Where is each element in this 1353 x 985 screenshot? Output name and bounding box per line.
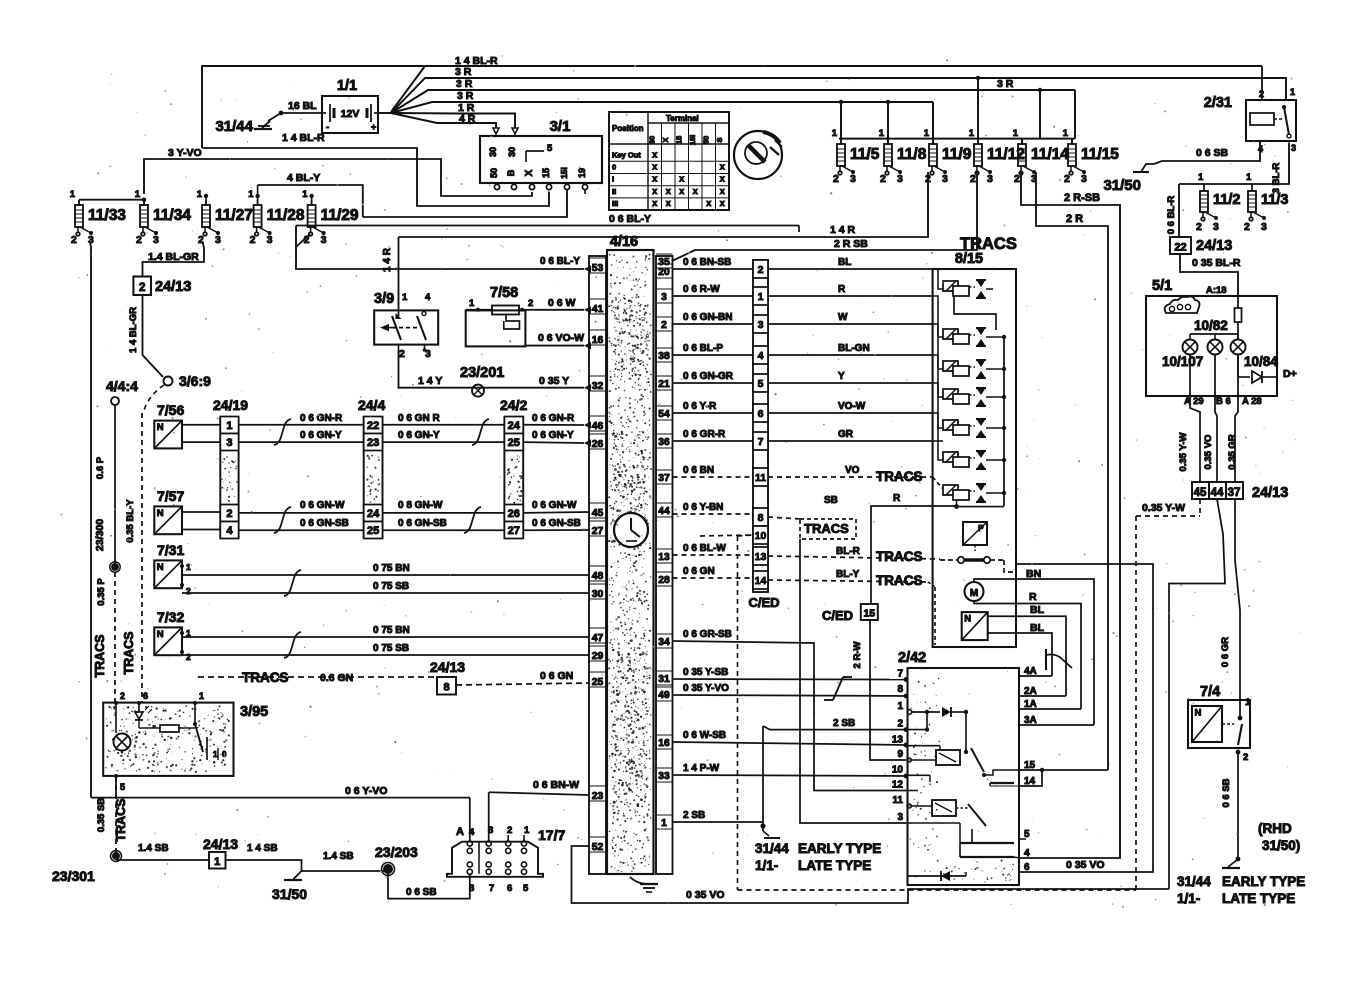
svg-text:N: N (157, 562, 164, 573)
svg-text:2: 2 (1243, 752, 1248, 763)
svg-text:1: 1 (879, 128, 885, 139)
svg-text:0 75 SB: 0 75 SB (373, 643, 409, 654)
svg-text:0: 0 (222, 750, 227, 759)
svg-text:x: x (720, 162, 725, 172)
svg-text:24/2: 24/2 (500, 397, 527, 413)
svg-text:15I: 15I (688, 135, 697, 145)
svg-text:0 6 R-W: 0 6 R-W (683, 284, 720, 295)
svg-text:2: 2 (661, 320, 667, 331)
svg-text:1: 1 (197, 189, 203, 200)
svg-text:2: 2 (250, 234, 256, 246)
svg-text:III: III (612, 199, 618, 208)
svg-text:0 8 GN-W: 0 8 GN-W (398, 500, 443, 511)
svg-text:0 35 BL-R: 0 35 BL-R (1192, 257, 1241, 269)
svg-text:23/301: 23/301 (52, 868, 95, 884)
svg-text:VO: VO (845, 465, 860, 476)
svg-text:2: 2 (186, 652, 191, 662)
svg-text:1: 1 (1063, 128, 1069, 139)
svg-text:0 6 GN-Y: 0 6 GN-Y (300, 430, 342, 441)
svg-text:0.35 Y-W: 0.35 Y-W (1178, 433, 1189, 472)
svg-text:21: 21 (658, 379, 670, 390)
svg-text:12V: 12V (341, 108, 360, 120)
svg-text:3: 3 (153, 234, 159, 246)
svg-text:6: 6 (758, 408, 764, 420)
svg-text:1: 1 (1290, 87, 1295, 97)
svg-text:0 6 BL-W: 0 6 BL-W (683, 543, 726, 554)
svg-text:II: II (612, 187, 616, 196)
svg-text:0 6 GN-SB: 0 6 GN-SB (398, 518, 447, 529)
svg-text:2/42: 2/42 (898, 650, 926, 666)
svg-text:11/8: 11/8 (897, 146, 927, 163)
svg-text:11/5: 11/5 (850, 146, 880, 163)
svg-text:0 6 SB: 0 6 SB (406, 887, 437, 898)
svg-text:0.35 GR: 0.35 GR (1227, 434, 1238, 470)
svg-text:54: 54 (658, 409, 670, 420)
svg-text:5/1: 5/1 (1152, 278, 1172, 294)
svg-text:2/31: 2/31 (1204, 95, 1232, 111)
svg-text:7/31: 7/31 (157, 542, 184, 558)
svg-text:0 6 BN: 0 6 BN (683, 465, 714, 476)
svg-text:1: 1 (186, 562, 191, 572)
svg-text:0 35 VO: 0 35 VO (1066, 859, 1105, 871)
svg-text:2: 2 (1244, 221, 1250, 233)
svg-text:B 6: B 6 (1216, 396, 1231, 407)
svg-text:10/107: 10/107 (1162, 354, 1203, 369)
svg-text:2: 2 (528, 298, 533, 309)
svg-text:0 6 GN-R: 0 6 GN-R (532, 413, 575, 424)
svg-text:24/13: 24/13 (1196, 238, 1232, 254)
svg-text:6: 6 (507, 883, 512, 894)
svg-text:12: 12 (892, 780, 904, 791)
svg-text:5: 5 (523, 883, 529, 894)
svg-text:1: 1 (199, 691, 204, 701)
svg-text:0 6 GN: 0 6 GN (683, 566, 715, 577)
svg-text:20: 20 (658, 267, 670, 278)
svg-text:N: N (964, 614, 971, 625)
svg-text:16: 16 (658, 738, 670, 749)
svg-text:47: 47 (592, 633, 604, 644)
svg-text:24/19: 24/19 (213, 397, 248, 413)
svg-text:25: 25 (508, 437, 520, 449)
svg-text:2: 2 (120, 691, 125, 701)
svg-text:0 6 BL-P: 0 6 BL-P (683, 343, 723, 354)
svg-text:P: P (978, 523, 984, 533)
svg-text:44: 44 (1211, 487, 1224, 499)
svg-text:11/28: 11/28 (267, 207, 305, 224)
svg-text:23/300: 23/300 (94, 519, 106, 551)
svg-text:8/15: 8/15 (955, 251, 983, 267)
svg-text:1: 1 (924, 128, 930, 139)
svg-text:0 6 GN-SB: 0 6 GN-SB (300, 518, 349, 529)
svg-text:23/201: 23/201 (460, 365, 504, 381)
svg-text:0 6 GN-SB: 0 6 GN-SB (532, 518, 581, 529)
svg-text:11/14: 11/14 (1031, 146, 1069, 163)
svg-text:30: 30 (648, 136, 657, 144)
svg-text:BL: BL (838, 257, 851, 268)
svg-text:2: 2 (399, 348, 405, 360)
svg-text:24: 24 (508, 420, 521, 432)
svg-text:M: M (970, 588, 978, 599)
svg-text:TRACS: TRACS (93, 634, 107, 677)
svg-text:x: x (679, 174, 684, 184)
svg-text:11/34: 11/34 (153, 207, 191, 224)
svg-text:10/82: 10/82 (1194, 318, 1228, 333)
svg-text:C/ED: C/ED (748, 595, 779, 610)
svg-text:2: 2 (758, 264, 764, 276)
svg-text:3/9: 3/9 (374, 291, 394, 307)
svg-text:1: 1 (469, 298, 475, 309)
svg-text:X: X (661, 137, 670, 142)
svg-text:0 6 W-SB: 0 6 W-SB (683, 730, 726, 741)
svg-text:7/58: 7/58 (490, 285, 518, 301)
svg-text:30: 30 (488, 147, 498, 157)
svg-text:0 6 GR-R: 0 6 GR-R (683, 429, 726, 440)
svg-text:1: 1 (1246, 172, 1252, 183)
svg-text:11/9: 11/9 (942, 146, 972, 163)
svg-text:24: 24 (367, 508, 380, 520)
svg-text:0.35 VO: 0.35 VO (1203, 435, 1214, 470)
svg-text:45: 45 (592, 508, 604, 519)
svg-text:2 SB: 2 SB (833, 718, 855, 729)
svg-text:17/7: 17/7 (538, 827, 565, 843)
svg-text:x: x (706, 198, 711, 208)
svg-text:1 4 Y: 1 4 Y (418, 375, 442, 387)
svg-text:7: 7 (758, 436, 764, 448)
svg-text:3: 3 (1291, 143, 1296, 153)
svg-text:0 6 GN R: 0 6 GN R (398, 413, 440, 424)
svg-text:1: 1 (213, 750, 218, 759)
svg-text:S: S (715, 137, 724, 142)
svg-text:4: 4 (758, 350, 764, 362)
svg-text:23: 23 (592, 791, 604, 802)
svg-text:2: 2 (833, 173, 839, 185)
svg-text:26: 26 (592, 439, 604, 450)
svg-text:3: 3 (1081, 173, 1087, 185)
svg-text:0 6 BL-Y: 0 6 BL-Y (540, 256, 580, 267)
svg-text:+: + (371, 122, 376, 132)
svg-text:5: 5 (120, 782, 125, 792)
svg-text:W: W (838, 312, 848, 323)
svg-text:24/13: 24/13 (203, 836, 238, 852)
svg-text:0.35 SB: 0.35 SB (96, 798, 107, 832)
svg-text:1.4 SB: 1.4 SB (323, 851, 354, 862)
svg-text:8: 8 (897, 684, 903, 695)
svg-text:14: 14 (755, 575, 767, 587)
svg-text:30: 30 (592, 589, 604, 600)
svg-text:10/84: 10/84 (1244, 354, 1278, 369)
svg-text:41: 41 (592, 304, 604, 315)
svg-text:11: 11 (755, 472, 766, 484)
svg-text:3: 3 (267, 234, 273, 246)
svg-text:3: 3 (987, 173, 993, 185)
svg-text:1 4 R: 1 4 R (830, 224, 856, 236)
svg-text:0 35 Y-VO: 0 35 Y-VO (683, 683, 729, 694)
svg-text:11/29: 11/29 (321, 207, 359, 224)
svg-text:1: 1 (969, 128, 975, 139)
svg-text:5: 5 (547, 143, 553, 154)
svg-text:R: R (838, 284, 846, 295)
svg-text:N: N (157, 629, 164, 640)
svg-text:27: 27 (592, 526, 604, 537)
svg-text:0 6 W: 0 6 W (548, 297, 576, 309)
svg-text:53: 53 (592, 263, 604, 274)
svg-text:50: 50 (489, 168, 499, 178)
svg-text:32: 32 (592, 381, 604, 392)
svg-text:23: 23 (367, 437, 379, 449)
svg-text:45: 45 (1194, 487, 1207, 499)
svg-text:1.4 SB: 1.4 SB (138, 843, 169, 854)
svg-text:3: 3 (758, 319, 764, 331)
svg-text:A 29: A 29 (1184, 396, 1204, 407)
svg-text:0.35 BL-Y: 0.35 BL-Y (125, 499, 136, 543)
svg-text:0 6 GN-W: 0 6 GN-W (532, 500, 577, 511)
svg-text:15: 15 (675, 136, 684, 144)
svg-text:24/4: 24/4 (358, 397, 385, 413)
svg-text:0 6 GN-Y: 0 6 GN-Y (532, 430, 574, 441)
svg-text:x: x (693, 186, 698, 196)
svg-text:0 75 BN: 0 75 BN (373, 625, 410, 636)
svg-text:1/1: 1/1 (337, 78, 357, 94)
svg-text:0.35 P: 0.35 P (96, 578, 107, 606)
svg-text:15: 15 (863, 608, 875, 620)
svg-text:2 R-SB: 2 R-SB (1064, 192, 1100, 204)
svg-text:0 6 BL-Y: 0 6 BL-Y (609, 213, 651, 225)
svg-text:x: x (666, 198, 671, 208)
svg-text:2: 2 (880, 173, 886, 185)
svg-text:LATE TYPE: LATE TYPE (1222, 891, 1295, 906)
svg-text:3 R: 3 R (456, 78, 473, 90)
svg-text:0.35 Y-W: 0.35 Y-W (1142, 502, 1185, 514)
svg-text:0 6 Y-BN: 0 6 Y-BN (683, 502, 723, 513)
svg-text:0 6 VO-W: 0 6 VO-W (538, 332, 584, 344)
svg-text:27: 27 (508, 525, 520, 537)
svg-text:2: 2 (1064, 173, 1070, 185)
svg-text:A 28: A 28 (1242, 396, 1262, 407)
svg-text:3: 3 (897, 173, 903, 185)
svg-text:1: 1 (1198, 172, 1204, 183)
svg-text:1: 1 (1013, 128, 1019, 139)
svg-text:1/1-: 1/1- (755, 858, 778, 873)
svg-text:3: 3 (321, 234, 327, 246)
svg-text:x: x (652, 174, 657, 184)
svg-text:BL-Y: BL-Y (836, 569, 860, 580)
svg-text:A: A (456, 826, 464, 838)
svg-text:13: 13 (755, 551, 767, 563)
svg-text:SB: SB (824, 495, 838, 506)
svg-text:0 6 SB: 0 6 SB (1196, 147, 1229, 159)
svg-text:4 BL-Y: 4 BL-Y (287, 172, 320, 184)
svg-text:3: 3 (942, 173, 948, 185)
svg-text:x: x (720, 186, 725, 196)
svg-text:33: 33 (658, 771, 670, 782)
svg-text:26: 26 (508, 508, 520, 520)
svg-text:3: 3 (661, 292, 667, 303)
svg-text:48: 48 (592, 571, 604, 582)
svg-text:0 6 Y-VO: 0 6 Y-VO (345, 785, 387, 797)
svg-text:0 6 GN-R: 0 6 GN-R (300, 413, 343, 424)
svg-text:1: 1 (1245, 697, 1251, 708)
svg-text:31/50: 31/50 (272, 886, 307, 902)
svg-text:1 4 P-W: 1 4 P-W (683, 763, 720, 774)
svg-text:3: 3 (226, 437, 232, 449)
svg-text:7/4: 7/4 (1200, 684, 1220, 700)
svg-text:31/44: 31/44 (215, 118, 253, 135)
svg-text:BL: BL (1030, 604, 1045, 616)
svg-text:x: x (652, 198, 657, 208)
svg-text:22: 22 (367, 420, 379, 432)
svg-text:36: 36 (658, 437, 670, 448)
svg-text:0 35 VO: 0 35 VO (686, 889, 725, 901)
svg-text:2: 2 (897, 719, 903, 730)
svg-text:1: 1 (135, 189, 141, 200)
svg-text:7/56: 7/56 (157, 402, 184, 418)
svg-text:0.6 GN: 0.6 GN (320, 672, 353, 684)
svg-text:7: 7 (897, 669, 903, 680)
svg-text:24/13: 24/13 (155, 279, 191, 295)
svg-text:5: 5 (758, 378, 764, 390)
svg-text:9: 9 (897, 749, 903, 760)
svg-text:2 R: 2 R (1066, 213, 1083, 225)
svg-text:0 6 SB: 0 6 SB (1221, 778, 1232, 807)
svg-text:2: 2 (71, 234, 77, 246)
svg-text:4/16: 4/16 (610, 234, 638, 250)
svg-text:1 4 BL-R: 1 4 BL-R (282, 132, 325, 144)
svg-text:3 BL-R: 3 BL-R (1271, 163, 1282, 194)
svg-text:0 35 Y-SB: 0 35 Y-SB (683, 667, 728, 678)
svg-text:2 R-W: 2 R-W (852, 642, 863, 669)
svg-text:2: 2 (186, 586, 191, 596)
svg-text:11/33: 11/33 (88, 207, 126, 224)
svg-text:0 6 GN: 0 6 GN (540, 670, 573, 682)
svg-text:31/44: 31/44 (1177, 874, 1211, 889)
svg-text:8: 8 (469, 883, 474, 894)
svg-text:1: 1 (661, 818, 667, 829)
svg-text:23/203: 23/203 (375, 844, 418, 860)
svg-text:Terminal: Terminal (666, 114, 699, 123)
svg-text:3: 3 (1213, 221, 1219, 233)
svg-text:BL-GN: BL-GN (838, 343, 870, 354)
svg-text:3/1: 3/1 (550, 118, 571, 135)
svg-text:I: I (612, 175, 614, 184)
svg-text:1: 1 (248, 189, 254, 200)
svg-text:34: 34 (658, 637, 670, 648)
svg-text:31/50): 31/50) (1262, 838, 1300, 853)
svg-text:49: 49 (658, 690, 670, 701)
svg-text:31/50: 31/50 (1103, 177, 1141, 194)
svg-text:R: R (1029, 591, 1037, 603)
svg-text:1: 1 (70, 189, 76, 200)
svg-text:0 6 BL-R: 0 6 BL-R (1166, 196, 1177, 235)
svg-text:0 6 GN-GR: 0 6 GN-GR (683, 371, 734, 382)
svg-text:2: 2 (970, 173, 976, 185)
svg-text:2: 2 (136, 234, 142, 246)
svg-text:VO-W: VO-W (838, 401, 866, 412)
svg-text:24/13: 24/13 (1252, 485, 1288, 501)
svg-text:N: N (157, 508, 164, 519)
svg-text:0: 0 (612, 163, 616, 172)
svg-text:C/ED: C/ED (822, 608, 853, 623)
svg-text:TRACS: TRACS (876, 573, 923, 588)
svg-text:28: 28 (658, 575, 670, 586)
svg-text:3 R: 3 R (997, 78, 1014, 90)
svg-text:N: N (157, 422, 164, 433)
svg-text:3: 3 (1261, 221, 1267, 233)
svg-text:x: x (652, 186, 657, 196)
svg-text:4/4:4: 4/4:4 (106, 378, 138, 394)
svg-text:11/2: 11/2 (1213, 192, 1240, 208)
svg-text:X: X (524, 169, 535, 176)
svg-text:x: x (652, 162, 657, 172)
svg-text:15: 15 (541, 168, 551, 178)
svg-text:10: 10 (755, 530, 767, 542)
svg-text:37: 37 (658, 473, 670, 484)
svg-text:1: 1 (214, 856, 220, 868)
svg-text:2 R SB: 2 R SB (834, 238, 868, 250)
svg-text:3: 3 (850, 173, 856, 185)
svg-text:R: R (893, 493, 901, 504)
svg-text:TRACS: TRACS (122, 631, 136, 674)
svg-text:GR: GR (838, 429, 854, 440)
svg-text:-: - (326, 122, 329, 132)
svg-text:N: N (1195, 708, 1202, 719)
svg-text:0 6 GR: 0 6 GR (1220, 637, 1231, 667)
svg-text:8: 8 (758, 512, 764, 524)
svg-text:24/13: 24/13 (430, 659, 465, 675)
svg-text:TRACS: TRACS (804, 521, 849, 536)
svg-text:50: 50 (702, 136, 711, 144)
svg-text:(RHD: (RHD (1258, 821, 1292, 836)
svg-text:Key Out: Key Out (612, 150, 641, 159)
svg-text:6: 6 (143, 691, 148, 701)
svg-text:Position: Position (612, 124, 644, 133)
svg-text:Y: Y (838, 371, 845, 382)
svg-text:2: 2 (1196, 221, 1202, 233)
svg-text:1: 1 (758, 291, 764, 303)
svg-text:19: 19 (577, 168, 587, 178)
svg-text:25: 25 (367, 525, 379, 537)
svg-text:3 R: 3 R (455, 66, 472, 78)
svg-text:1: 1 (832, 128, 838, 139)
svg-text:2: 2 (139, 282, 145, 294)
svg-text:3: 3 (897, 812, 903, 823)
svg-text:13: 13 (892, 735, 904, 746)
svg-text:11: 11 (892, 795, 903, 806)
svg-text:x: x (720, 198, 725, 208)
svg-text:3 R: 3 R (457, 90, 474, 102)
svg-text:0.6 P: 0.6 P (95, 456, 106, 479)
svg-text:11/15: 11/15 (1081, 146, 1119, 163)
svg-text:0 6 GR-SB: 0 6 GR-SB (683, 629, 732, 640)
svg-text:2 SB: 2 SB (683, 810, 705, 821)
svg-text:25: 25 (592, 677, 604, 688)
svg-text:4: 4 (425, 292, 431, 303)
svg-text:8: 8 (443, 682, 449, 694)
svg-text:46: 46 (592, 421, 604, 432)
svg-text:30: 30 (507, 147, 517, 157)
svg-text:x: x (666, 186, 671, 196)
svg-text:A:18: A:18 (1206, 285, 1227, 296)
svg-text:38: 38 (658, 351, 670, 362)
svg-text:0 75 BN: 0 75 BN (373, 563, 410, 574)
svg-text:1: 1 (226, 420, 232, 432)
svg-text:52: 52 (592, 842, 604, 853)
svg-text:1/1-: 1/1- (1177, 891, 1200, 906)
svg-text:15I: 15I (559, 167, 569, 179)
svg-text:2: 2 (507, 825, 512, 836)
svg-text:0 75 SB: 0 75 SB (373, 581, 409, 592)
svg-text:3/95: 3/95 (240, 704, 268, 720)
svg-text:0 35 Y: 0 35 Y (539, 375, 569, 387)
